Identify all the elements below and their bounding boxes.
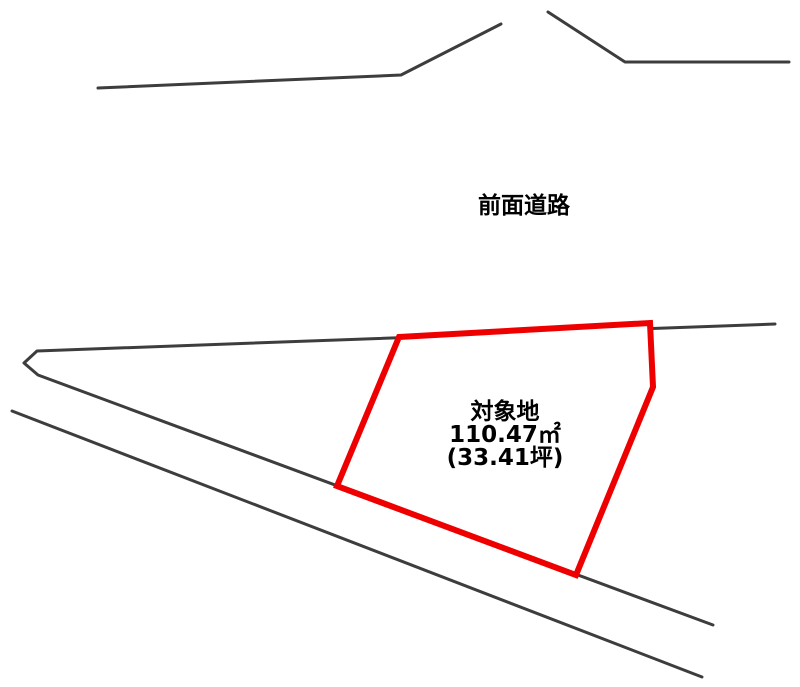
- road-edge-upper-left-line: [98, 24, 501, 88]
- parcel-area-tsubo-label: (33.41坪): [447, 445, 564, 471]
- front-road-label: 前面道路: [478, 192, 571, 219]
- road-edge-upper-right-line: [548, 12, 789, 62]
- parcel-area-m2-label: 110.47㎡: [449, 421, 561, 448]
- parcel-name-label: 対象地: [471, 398, 540, 425]
- site-plan-page: 前面道路 対象地 110.47㎡ (33.41坪): [0, 0, 800, 687]
- site-plan-diagram: 前面道路 対象地 110.47㎡ (33.41坪): [0, 0, 800, 687]
